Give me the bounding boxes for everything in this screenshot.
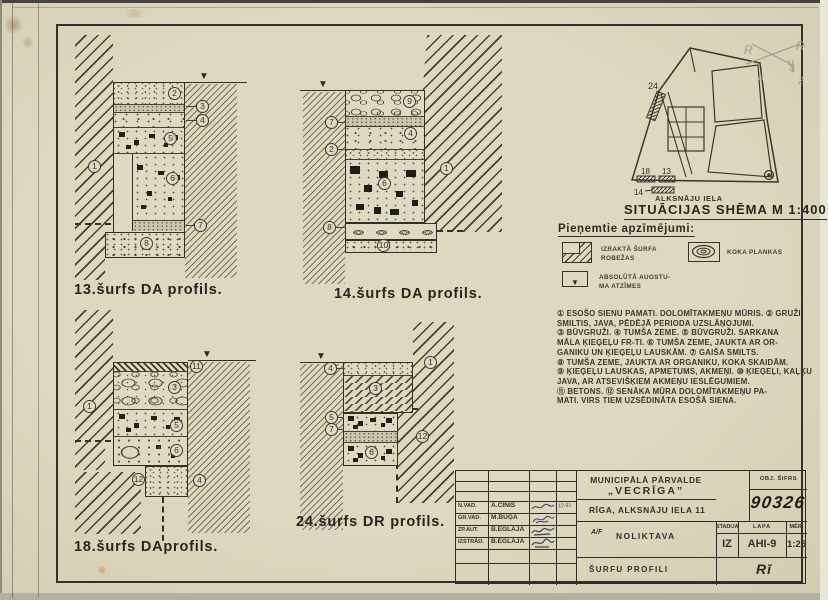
pit-18-continuation [162, 497, 164, 541]
legend-label: KOKA PLANKAS [727, 249, 782, 256]
tb-vline [556, 471, 557, 585]
tb-sheet-value: AHI-9 [738, 538, 786, 550]
soil-layer [132, 154, 184, 221]
note-line: JAVA, AR ATSEVIŠĶIEM AKMEŅU IESLĒGUMIEM. [557, 377, 821, 387]
tb-name: B.EGLĀJA [491, 526, 524, 533]
profile-caption: 13.šurfs DA profils. [74, 282, 222, 298]
tb-object-prefix: A/F [591, 529, 602, 536]
triangle-icon: ▼ [571, 278, 579, 287]
layer-badge: 5 [170, 419, 183, 432]
layer-badge: 12 [132, 473, 145, 486]
tb-hline [456, 563, 576, 564]
tb-hline [749, 489, 807, 490]
leader-line [336, 368, 344, 369]
tb-org-line2: „VECRĪGA” [576, 485, 716, 497]
layer-badge: 8 [140, 237, 153, 250]
legend-label: ROBEŽAS [601, 255, 635, 262]
ground-hatch-18-below [75, 472, 141, 534]
soil-layer [344, 414, 397, 432]
plank-layer-14 [345, 223, 437, 240]
tb-hline [576, 557, 807, 558]
layer-badge: 12 [416, 430, 429, 443]
margin-line [38, 3, 39, 598]
pencil-scribbles: R R a 2 [742, 38, 814, 88]
note-line: ⑪ BETONS. ⑫ SENĀKA MŪRA DOLOMĪTAKMEŅU PA… [557, 387, 821, 397]
note-line: GANIKU UN ĶIEĢEĻU LAUSKĀM. ⑦ GAIŠA SMILT… [557, 348, 821, 358]
layer-badge: 3 [196, 100, 209, 113]
marker-label: 13 [662, 167, 671, 176]
profile-caption: 14.šurfs DA profils. [334, 286, 482, 302]
tb-obj-cipher-label: OBJ. ŠIFRS [750, 476, 807, 482]
pencil-letter: R [744, 43, 753, 57]
note-line: ⑨ ĶIEĢEĻU LAUSKAS, APMETUMS, AKMEŅI. ⑩ Ķ… [557, 367, 821, 377]
title-block: N.VAD. GR.VAD. ZP.AUT. IZSTRĀD. A.CINIS … [455, 470, 806, 584]
signature-scribble [530, 513, 556, 525]
ground-line-24 [300, 362, 344, 363]
tb-hline [456, 549, 576, 550]
layer-badge: 4 [324, 362, 337, 375]
layer-badge: 9 [403, 95, 416, 108]
notes-block: ① ESOŠO SIENU PAMATI. DOLOMĪTAKMEŅU MŪRI… [557, 309, 821, 406]
layer-badge: 3 [168, 381, 181, 394]
tb-approval-sign: Rī [756, 561, 772, 577]
tb-hline [576, 521, 807, 522]
paper-stain [5, 14, 22, 36]
layer-badge: 6 [378, 177, 391, 190]
tb-org-line1: MUNICIPĀLĀ PĀRVALDE [576, 475, 716, 485]
note-line: SMILTIS, JAVA, PĒDĒJĀ PERIODA UZSLĀŅOJUM… [557, 319, 821, 329]
tb-stage-value: IZ [716, 538, 738, 550]
tb-obj-number: 90326 [748, 493, 809, 513]
legend-symbol-wood-plank [688, 242, 720, 262]
pencil-letter: 2 [797, 76, 804, 87]
ground-hatch-24 [300, 364, 343, 530]
layer-badge: 4 [193, 474, 206, 487]
legend-symbol-absolute-elevation: ▼ [562, 271, 588, 287]
level-mark-icon: ▼ [318, 80, 328, 90]
path-line [690, 48, 695, 72]
scan-edge-top [0, 0, 828, 3]
layer-badge: 7 [325, 116, 338, 129]
layer-badge: 10 [377, 239, 390, 252]
marker-label: 18 [641, 167, 650, 176]
drawing-sheet: ▼ 1 2 3 4 5 6 7 8 13.šurfs DA profils. ▼… [0, 0, 828, 600]
foundation-dash-14 [437, 230, 463, 232]
scan-edge-bottom [0, 593, 828, 600]
tb-role: N.VAD. [458, 503, 477, 509]
signature-scribble [530, 525, 556, 537]
tb-address: RĪGA, ALKSNĀJU IELA 11 [589, 505, 705, 515]
pit-13 [113, 82, 185, 233]
layer-badge: 1 [440, 162, 453, 175]
signature-scribble [530, 537, 556, 549]
signature-scribble [530, 502, 556, 512]
legend-label: ABSOLŪTĀ AUGSTU- [599, 274, 671, 281]
soil-layer [114, 113, 184, 128]
ground-hatch-13 [185, 84, 237, 278]
level-mark-icon: ▼ [316, 352, 326, 362]
note-line: ⑧ TUMŠA ZEME, JAUKTA AR ORGANIKU, KOKA S… [557, 358, 821, 368]
tb-role: IZSTRĀD. [458, 539, 484, 545]
shurfs-bar-13 [659, 176, 675, 182]
note-line: ① ESOŠO SIENU PAMATI. DOLOMĪTAKMEŅU MŪRI… [557, 309, 821, 319]
tb-vline [716, 521, 717, 585]
layer-badge: 1 [424, 356, 437, 369]
tb-name: B.EGLĀJA [491, 538, 524, 545]
leader-line [338, 122, 346, 123]
legend-symbol-excavated-boundary [562, 242, 592, 263]
tb-stage-label: STADIJA [716, 524, 738, 530]
layer-badge: 6 [365, 446, 378, 459]
tb-name: M.BUĢA [491, 514, 518, 521]
layer-badge: 2 [168, 87, 181, 100]
legend-title: Pieņemtie apzīmējumi: [558, 223, 695, 237]
marker-tick [645, 190, 652, 191]
marker-label: 14 [634, 188, 643, 197]
pit-18-lower [145, 466, 188, 497]
scan-edge-right [820, 0, 828, 600]
profile-caption: 24.šurfs DR profils. [296, 514, 445, 530]
tb-vline [488, 471, 489, 585]
layer-badge: 8 [323, 221, 336, 234]
leader-line [336, 227, 346, 228]
layer-badge: 1 [83, 400, 96, 413]
tb-date: 12.91 [558, 503, 572, 510]
paper-stain [21, 36, 34, 49]
foundation-dash-18 [75, 440, 111, 442]
soil-layer [114, 363, 187, 372]
ground-line-14 [300, 90, 345, 91]
pencil-letter: R [796, 39, 805, 53]
building-outline [708, 120, 772, 177]
foundation-dash-13 [75, 223, 111, 225]
layer-badge: 11 [190, 360, 203, 373]
soil-layer [346, 117, 424, 127]
layer-badge: 2 [325, 143, 338, 156]
situation-title: SITUĀCIJAS SHĒMA M 1:400 [624, 202, 827, 220]
tb-hline [456, 481, 576, 482]
margin-line [12, 7, 818, 8]
tb-scale-label: MĒR. [786, 524, 807, 530]
tb-object-name: NOLIKTAVA [616, 531, 676, 541]
layer-badge: 7 [325, 423, 338, 436]
shurfs-bar-18 [637, 176, 655, 182]
soil-layer [346, 150, 424, 160]
tb-hline [576, 499, 716, 500]
leader-line [338, 417, 344, 418]
layer-badge: 4 [404, 127, 417, 140]
leader-line [338, 149, 346, 150]
legend-symbol-inner [562, 242, 580, 254]
soil-layer [114, 105, 184, 113]
shurfs-bar-24 [647, 91, 666, 120]
tb-hline [716, 533, 807, 534]
layer-badge: 6 [166, 172, 179, 185]
path-line [668, 92, 692, 174]
wall-hatch-14 [418, 35, 502, 232]
paper-stain [120, 9, 148, 18]
layer-badge: 3 [369, 382, 382, 395]
note-line: MĀLA ĶIEĢEĻU FR-TI. ⑥ TUMŠA ZEME, JAUKTA… [557, 338, 821, 348]
pit-14 [345, 90, 425, 223]
layer-badge: 5 [164, 132, 177, 145]
soil-layer [344, 363, 412, 376]
ground-hatch-14 [303, 92, 345, 284]
leader-line [338, 429, 344, 430]
profile-caption: 18.šurfs DAprofils. [74, 539, 218, 555]
shurfs-bar-14 [652, 187, 674, 193]
ground-hatch-18 [188, 362, 250, 533]
tb-role: GR.VAD. [458, 515, 481, 521]
tb-scale-value: 1:25 [786, 539, 807, 550]
soil-layer [132, 221, 184, 231]
margin-line [12, 3, 13, 598]
tb-role: ZP.AUT. [458, 527, 478, 533]
note-line: MATI. VIRS TIEM UZSĒDINĀTA ESOŠĀ SIENA. [557, 396, 821, 406]
layer-badge: 7 [194, 219, 207, 232]
layer-badge: 6 [170, 444, 183, 457]
soil-layer [344, 432, 397, 443]
level-mark-icon: ▼ [199, 72, 209, 82]
pencil-stroke [752, 44, 794, 66]
wood-plank-icon [689, 243, 718, 260]
tb-hline [456, 491, 576, 492]
marker-label: 24 [648, 81, 658, 91]
soil-layer [346, 160, 424, 222]
foundation-block-14 [345, 240, 437, 253]
legend-label: IZRAKTĀ ŠURFA [601, 246, 657, 253]
plan-dot [768, 174, 770, 176]
legend-label: MA ATZĪMES [599, 283, 641, 290]
tb-name: A.CINIS [491, 502, 515, 509]
scan-edge-left [0, 0, 2, 600]
note-line: ③ BŪVGRUŽI. ④ TUMŠA ZEME. ⑤ BŪVGRUŽI. SA… [557, 328, 821, 338]
level-mark-icon: ▼ [202, 350, 212, 360]
tb-hline [456, 501, 576, 502]
tb-doc-title: ŠURFU PROFILI [589, 565, 669, 574]
wall-dash-24 [396, 463, 398, 503]
tb-sheet-label: LAPA [738, 524, 786, 530]
pencil-letter: a [758, 72, 764, 83]
layer-badge: 1 [88, 160, 101, 173]
layer-badge: 4 [196, 114, 209, 127]
ground-line-13 [185, 82, 247, 83]
